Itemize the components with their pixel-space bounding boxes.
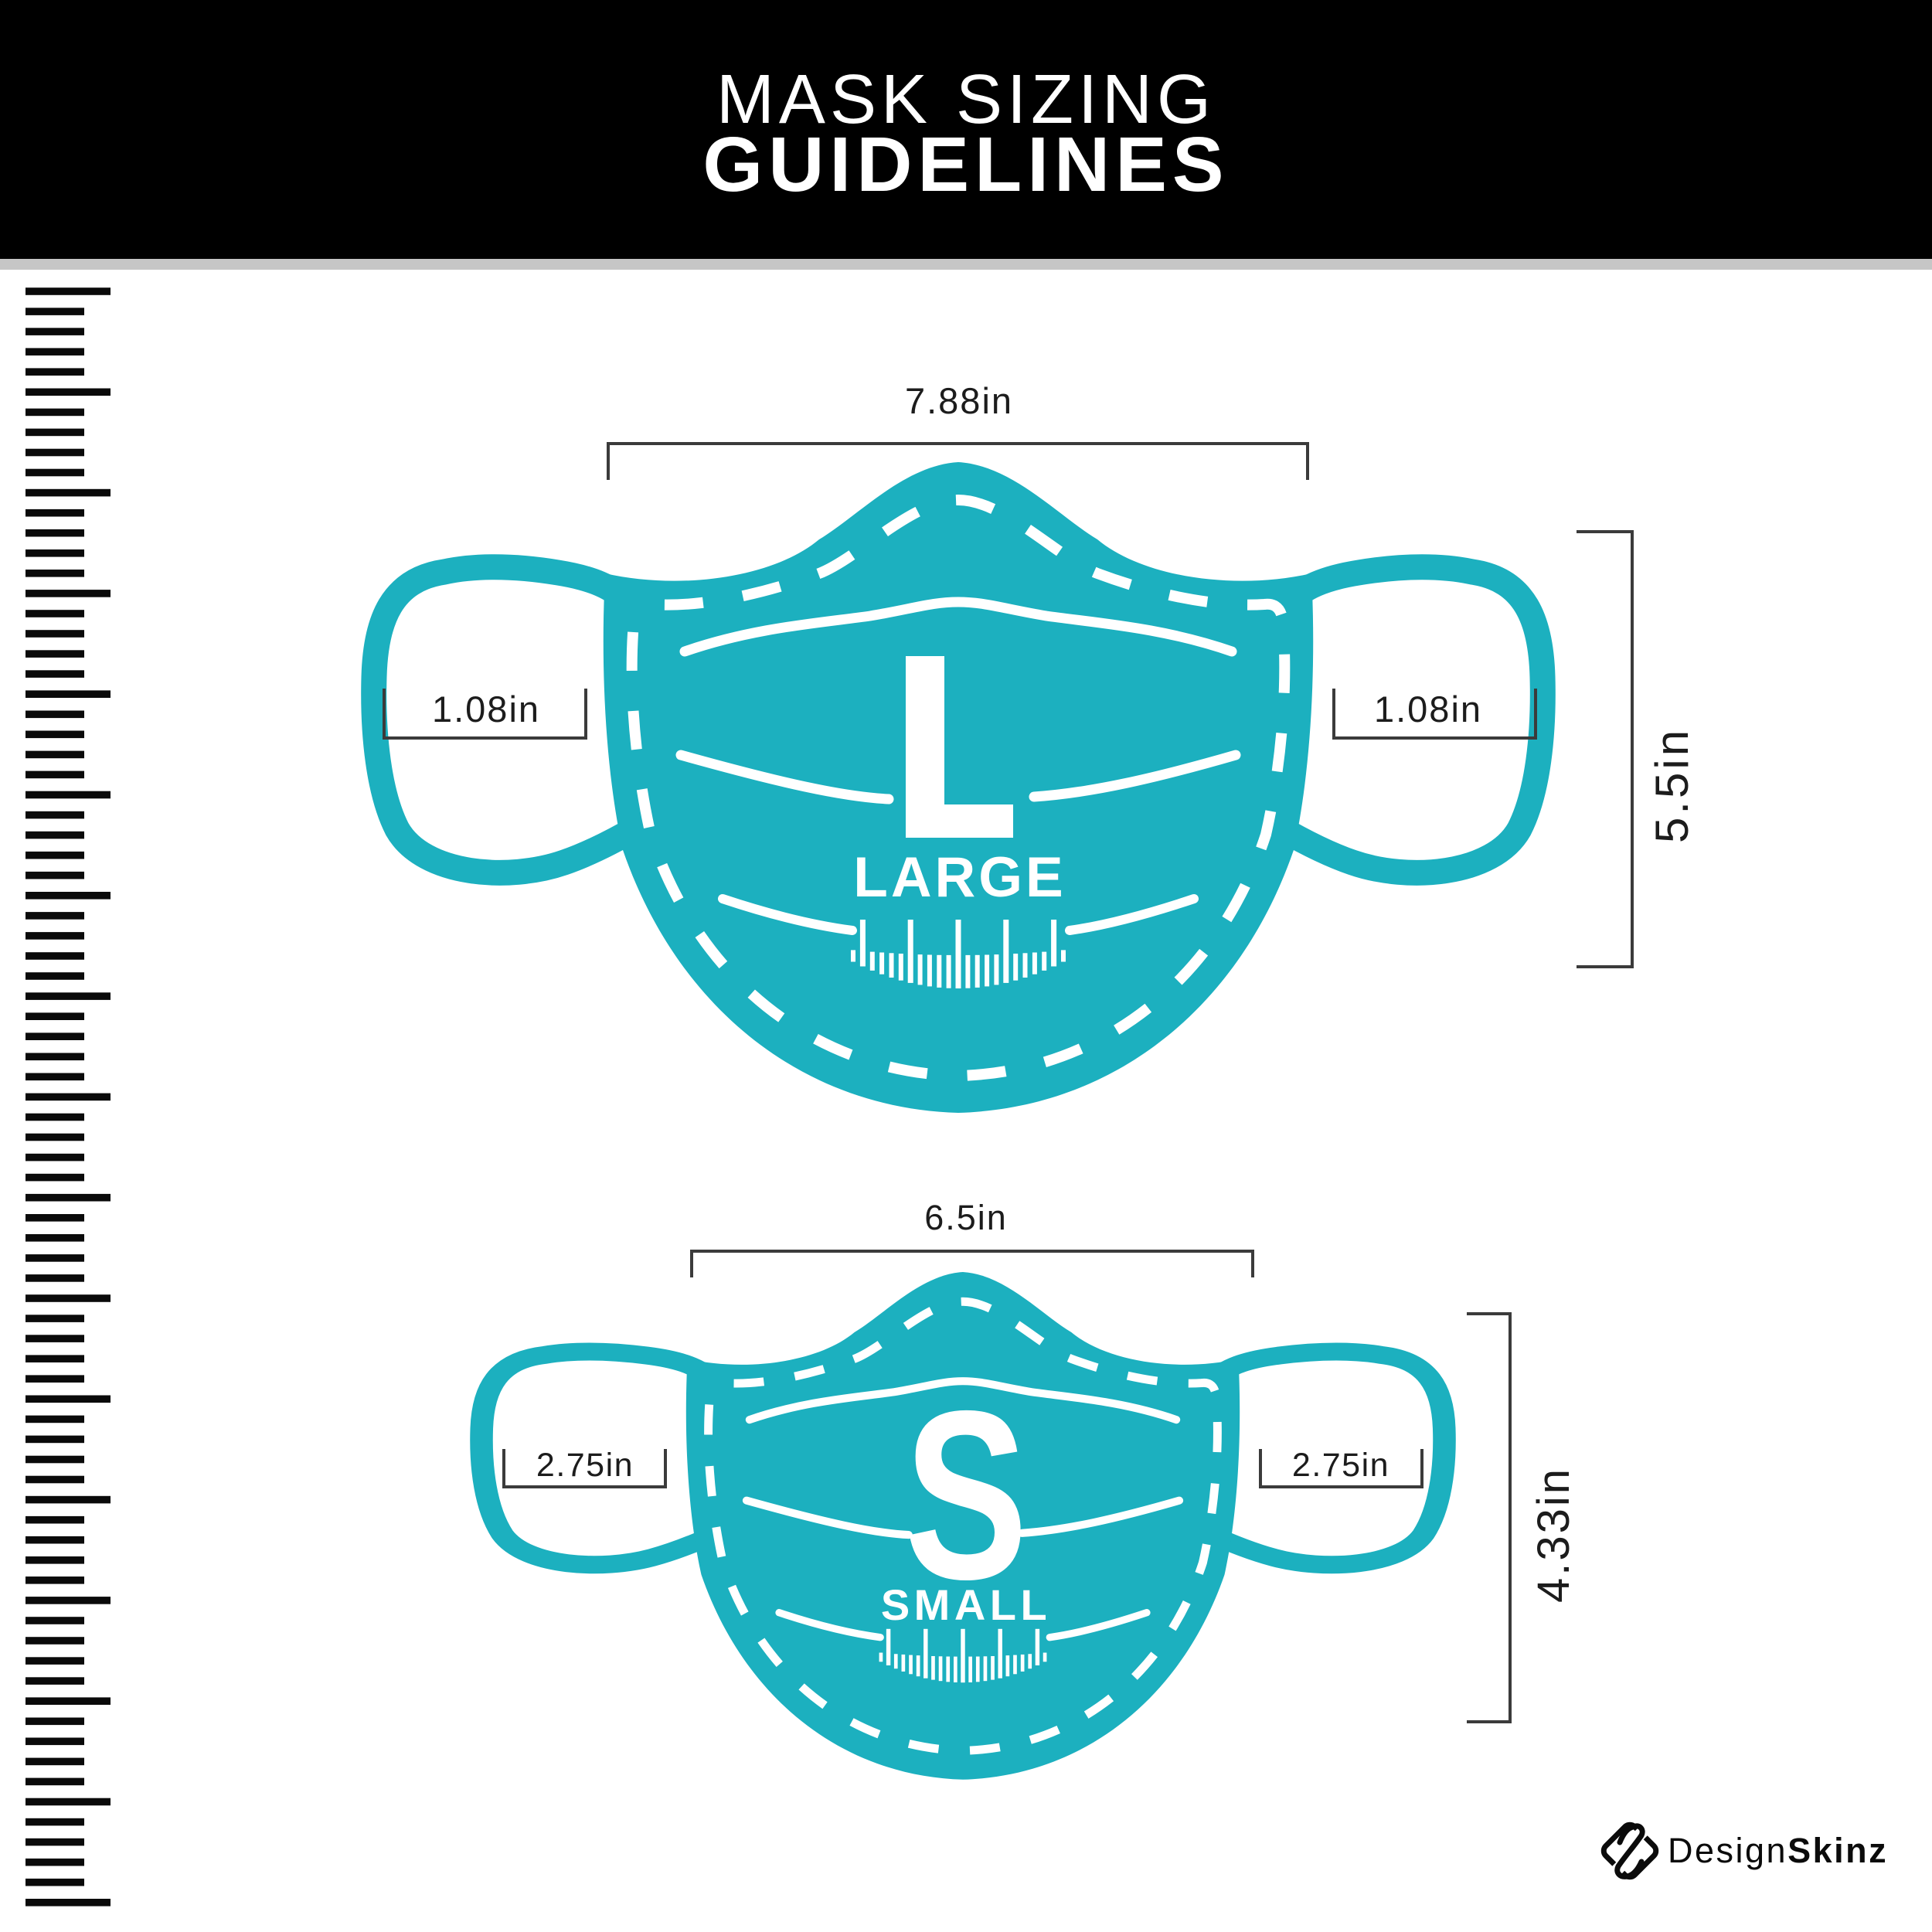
svg-text:2.75in: 2.75in	[1292, 1447, 1389, 1484]
svg-text:4.33in: 4.33in	[1529, 1467, 1579, 1603]
svg-text:2.75in: 2.75in	[536, 1447, 634, 1484]
svg-text:SMALL: SMALL	[881, 1580, 1051, 1629]
svg-text:5.5in: 5.5in	[1646, 727, 1698, 843]
svg-text:GUIDELINES: GUIDELINES	[702, 121, 1229, 208]
svg-text:1.08in: 1.08in	[432, 689, 540, 730]
svg-text:DesignSkinz: DesignSkinz	[1668, 1831, 1888, 1870]
svg-text:7.88in: 7.88in	[905, 380, 1013, 421]
svg-text:1.08in: 1.08in	[1374, 689, 1482, 730]
svg-text:LARGE: LARGE	[853, 846, 1066, 909]
svg-text:6.5in: 6.5in	[924, 1198, 1008, 1237]
